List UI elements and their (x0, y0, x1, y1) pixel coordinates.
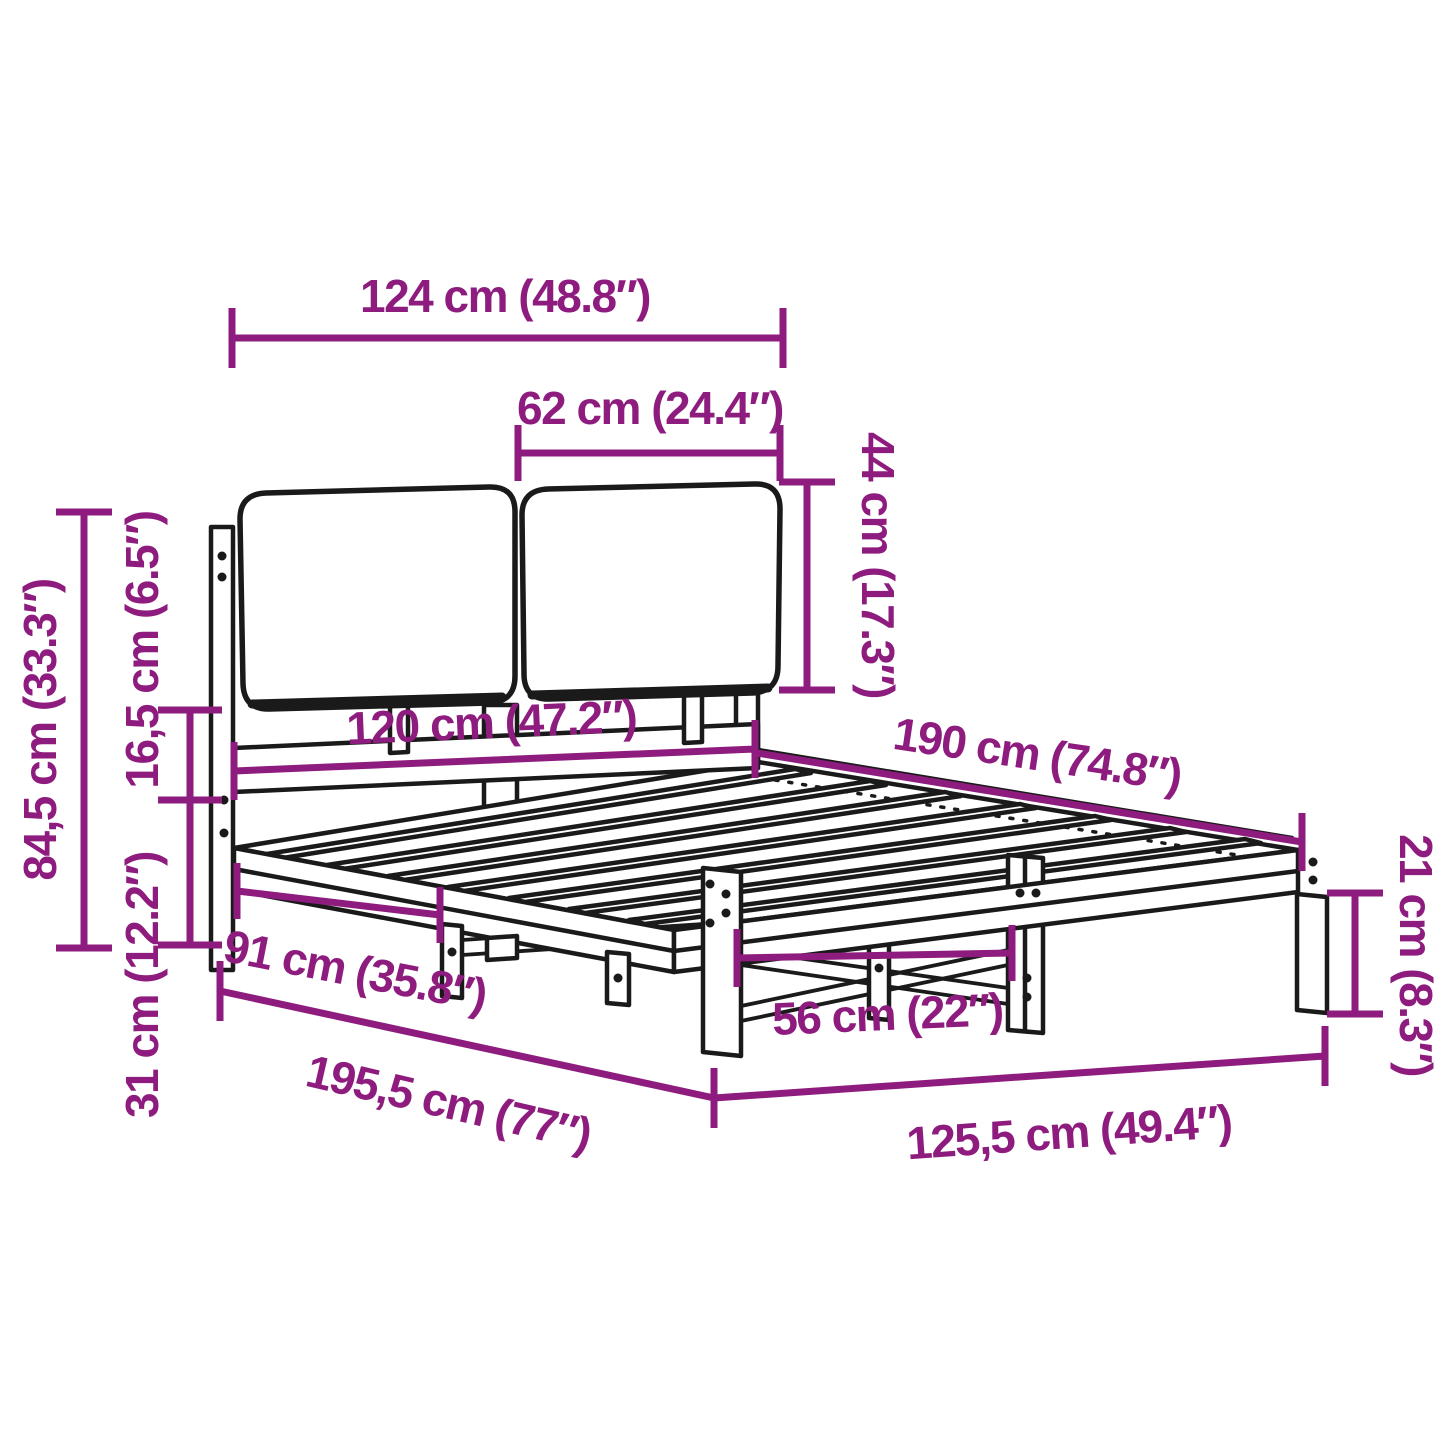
screw (1032, 889, 1041, 898)
support-block (487, 936, 517, 960)
dim-leg-height-line (1327, 893, 1383, 1014)
dimension-diagram-canvas: 124 cm (48.8″) 62 cm (24.4″) 44 cm (17.3… (0, 0, 1445, 1445)
screw (722, 909, 731, 918)
dim-cushion-height-line (779, 482, 835, 690)
screw (1016, 889, 1025, 898)
label-cushion-width: 62 cm (24.4″) (517, 382, 783, 434)
label-frame-height: 31 cm (12.2″) (116, 852, 168, 1118)
headboard-near-post (211, 527, 233, 970)
label-cushion-to-frame-height: 16,5 cm (6.5″) (116, 511, 168, 788)
label-bed-length: 190 cm (74.8″) (890, 707, 1185, 801)
screw (1023, 993, 1032, 1002)
screw (1309, 876, 1318, 885)
screw (218, 552, 227, 561)
screw (1023, 974, 1032, 983)
cushion-support (684, 691, 702, 743)
label-leg-height: 21 cm (8.3″) (1390, 834, 1442, 1076)
screw (875, 964, 884, 973)
far-foot-leg (1297, 894, 1327, 1013)
screw (722, 890, 731, 899)
headboard-cushion-left (240, 487, 515, 709)
label-headboard-total-height: 84,5 cm (33.3″) (14, 579, 66, 880)
headboard-cushion-right (522, 484, 780, 699)
label-total-width: 125,5 cm (49.4″) (905, 1095, 1233, 1170)
screw (218, 573, 227, 582)
label-center-leg-span: 56 cm (22″) (771, 983, 1004, 1045)
bed-dimension-diagram: 124 cm (48.8″) 62 cm (24.4″) 44 cm (17.3… (0, 0, 1445, 1445)
label-cushion-height: 44 cm (17.3″) (852, 432, 904, 698)
screw (706, 919, 715, 928)
screw (1309, 858, 1318, 867)
screw (706, 880, 715, 889)
screw (448, 948, 457, 957)
label-headboard-total-width: 124 cm (48.8″) (360, 270, 650, 322)
screw (220, 829, 229, 838)
screw (614, 974, 623, 983)
